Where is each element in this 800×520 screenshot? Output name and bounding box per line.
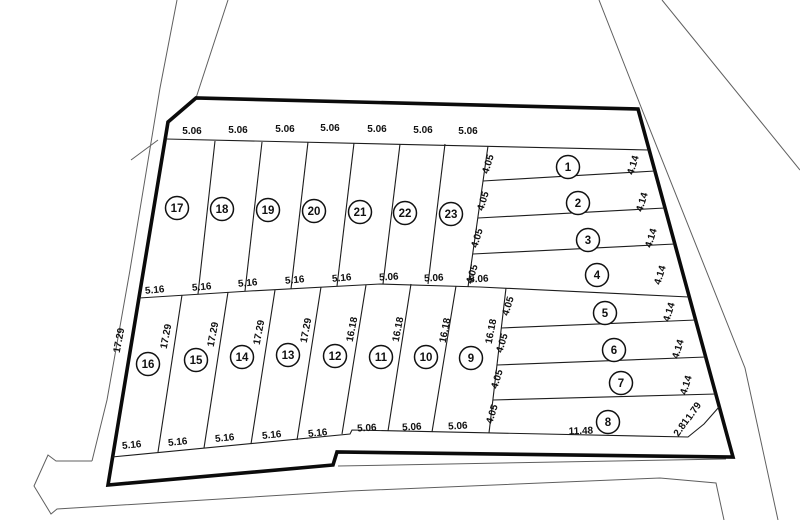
lot-line-middle [139,284,689,298]
road-edge-right-inner [599,0,778,520]
dim-label: 5.06 [379,271,399,283]
lot-number-label: 4 [594,270,601,282]
lot-number-label: 7 [618,378,624,390]
dim-label: 16.18 [391,316,407,343]
divider-bottom-16-15 [158,295,182,452]
lot-number-label: 10 [420,352,433,364]
dim-label: 5.06 [275,124,295,135]
dim-label: 5.06 [228,125,248,136]
road-edge-left-inner [92,0,177,461]
dim-label: 5.16 [145,284,166,297]
dim-label: 4.14 [644,227,660,249]
lot-line-top [166,139,649,150]
dim-label: 5.06 [458,126,478,137]
dim-label: 11.48 [568,426,593,438]
dim-label: 4.05 [490,368,506,390]
subdivision-plan: 5.065.065.065.065.065.065.065.165.165.16… [0,0,800,520]
dim-label: 5.06 [402,421,422,433]
lot-number-label: 15 [190,355,203,367]
dim-label: 17.29 [206,321,222,348]
plan-canvas: 5.065.065.065.065.065.065.065.165.165.16… [0,0,800,520]
divider-bottom-15-14 [204,292,228,448]
dim-label: 5.06 [320,123,340,134]
lot-number-label: 14 [236,352,249,364]
road-edge-bottom-inner [338,459,726,466]
dim-label: 4.05 [485,403,501,425]
dim-label: 4.14 [626,154,642,176]
road-lines [34,0,800,520]
road-edge-bottom-outer-with-arrow [34,455,724,520]
dim-label: 5.06 [413,125,433,136]
lot-number-badges: 1234567891011121314151617181920212223 [137,156,633,434]
lot-number-label: 20 [308,206,321,218]
dim-label: 4.05 [476,190,492,212]
road-edge-left-stub [131,140,158,160]
dim-label: 4.05 [501,295,517,317]
lot-number-label: 12 [329,351,342,363]
dim-label: 5.06 [182,126,202,137]
divider-bottom-13-12 [297,287,321,440]
dim-label: 5.16 [307,427,328,440]
lot-number-label: 11 [375,352,388,364]
dim-label: 17.29 [252,319,268,346]
dim-label: 5.06 [357,422,377,434]
dimension-labels: 5.065.065.065.065.065.065.065.165.165.16… [112,123,705,452]
dim-label: 5.16 [332,272,353,285]
dim-label: 4.14 [671,338,687,360]
dim-label: 16.18 [438,317,454,344]
lot-number-label: 21 [354,207,367,219]
dim-label: 4.14 [662,301,678,323]
divider-top-17-18 [198,141,215,294]
dim-label: 5.06 [424,272,444,284]
dim-label: 1.79 [684,400,704,423]
dim-label: 4.14 [635,191,651,213]
dim-label: 4.05 [495,332,511,354]
dim-label: 5.16 [238,277,259,290]
dim-label: 5.06 [367,124,387,135]
dim-label: 5.16 [167,436,188,449]
dim-label: 5.16 [192,281,213,294]
dim-label: 4.14 [679,374,695,396]
lot-number-label: 3 [585,235,591,247]
lot-number-label: 22 [399,208,412,220]
road-edge-right-outer [662,0,800,170]
lot-lines [112,139,719,457]
lot-number-label: 6 [611,345,617,357]
lot-number-label: 2 [575,198,581,210]
dim-label: 4.05 [481,153,497,175]
divider-bottom-14-13 [251,290,275,444]
lot-number-label: 9 [468,353,474,365]
road-edge-left-upper [196,0,228,98]
dim-label: 4.14 [653,264,669,286]
dim-label: 17.29 [159,323,175,350]
lot-number-label: 23 [445,209,458,221]
dim-label: 16.18 [345,316,361,343]
lot-number-label: 17 [171,203,184,215]
dim-label: 17.29 [112,327,128,354]
lot-number-label: 8 [605,417,612,429]
dim-label: 4.05 [470,227,486,249]
lot-number-label: 1 [565,162,572,174]
dim-label: 5.16 [214,432,235,445]
dim-label: 5.16 [285,274,306,287]
lot-number-label: 13 [282,350,295,362]
lot-number-label: 5 [602,308,609,320]
lot-number-label: 19 [262,205,275,217]
lot-number-label: 18 [216,204,229,216]
dim-label: 5.16 [261,429,282,442]
lot-number-label: 16 [142,359,155,371]
dim-label: 5.06 [448,420,468,432]
dim-label: 17.29 [299,317,315,344]
dim-label: 5.16 [121,439,142,452]
